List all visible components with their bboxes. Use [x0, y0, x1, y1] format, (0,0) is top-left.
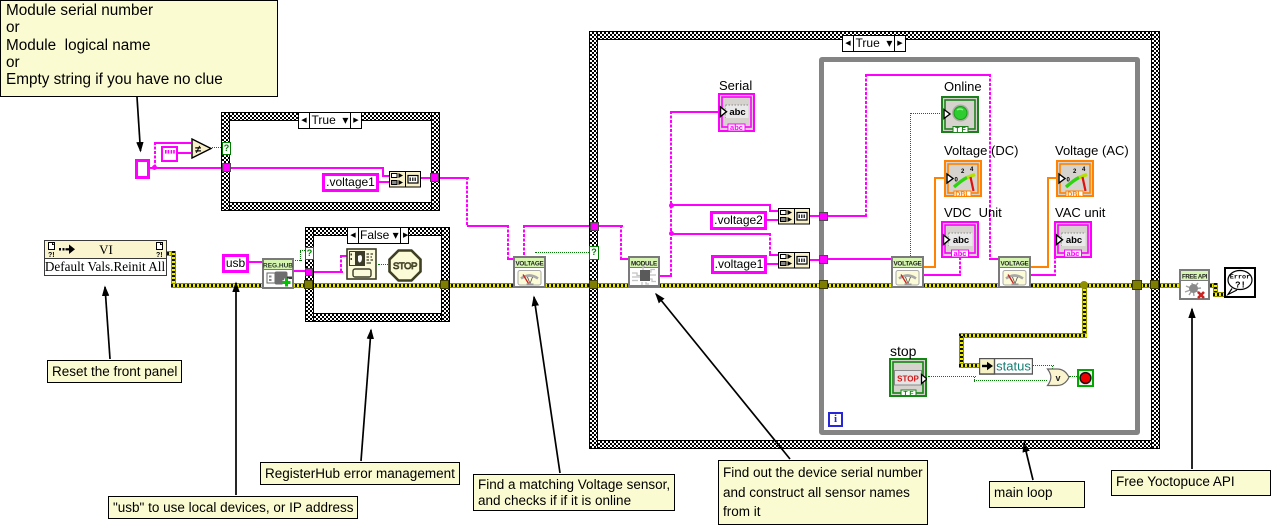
svg-text:VI: VI	[99, 242, 113, 257]
svg-text:?!: ?!	[48, 252, 55, 259]
svg-text:abc: abc	[1066, 235, 1082, 246]
svg-text:VOLTAGE: VOLTAGE	[893, 261, 921, 268]
svg-text:?!: ?!	[156, 252, 163, 259]
svg-text:abc: abc	[729, 107, 745, 118]
svg-text:?!: ?!	[1235, 281, 1246, 291]
svg-text:T F: T F	[955, 127, 966, 133]
svg-text:≠: ≠	[195, 144, 201, 156]
svg-text:T F: T F	[903, 390, 913, 397]
svg-text:v: v	[1055, 373, 1060, 383]
svg-text:abc: abc	[954, 249, 967, 258]
svg-text:abc: abc	[730, 123, 743, 132]
svg-text:STOP: STOP	[393, 261, 417, 272]
svg-text:Default Vals.Reinit All: Default Vals.Reinit All	[45, 259, 166, 274]
svg-text:status: status	[996, 359, 1031, 374]
svg-text:VOLTAGE: VOLTAGE	[515, 261, 543, 268]
svg-text:STOP: STOP	[897, 375, 919, 384]
svg-text:DBL: DBL	[955, 191, 970, 197]
svg-text:REG.HUB: REG.HUB	[263, 263, 293, 270]
svg-text:FREE API: FREE API	[1182, 275, 1208, 281]
svg-text:abc: abc	[1067, 249, 1080, 258]
svg-text:VOLTAGE: VOLTAGE	[1000, 261, 1028, 268]
svg-text:DBL: DBL	[1067, 191, 1082, 197]
svg-text:abc: abc	[953, 235, 969, 246]
